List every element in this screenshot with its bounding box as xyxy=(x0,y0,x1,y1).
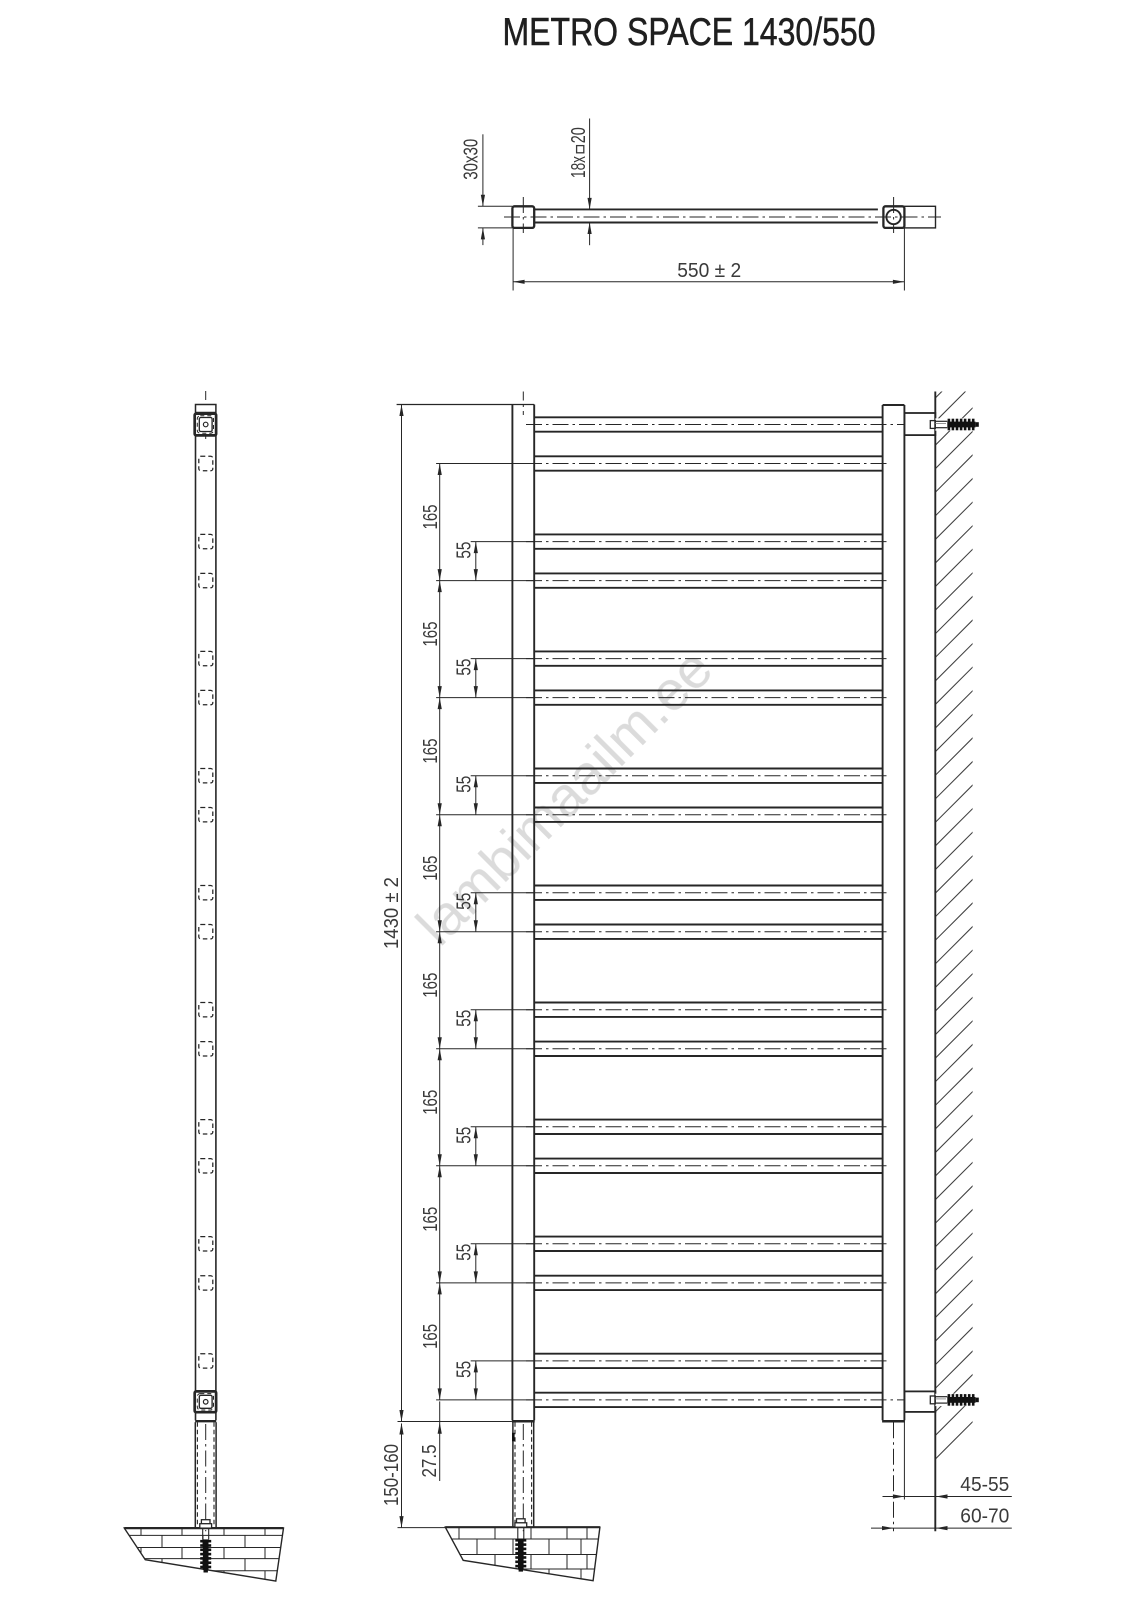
svg-text:55: 55 xyxy=(454,542,476,559)
svg-text:30x30: 30x30 xyxy=(461,139,483,180)
svg-text:METRO SPACE 1430/550: METRO SPACE 1430/550 xyxy=(503,11,876,54)
svg-text:1430 ± 2: 1430 ± 2 xyxy=(381,877,403,949)
svg-text:45-55: 45-55 xyxy=(960,1474,1009,1496)
svg-text:27.5: 27.5 xyxy=(419,1445,441,1478)
svg-text:150-160: 150-160 xyxy=(381,1444,403,1506)
svg-text:165: 165 xyxy=(420,739,442,764)
svg-text:55: 55 xyxy=(454,1010,476,1027)
svg-text:55: 55 xyxy=(454,776,476,793)
svg-text:165: 165 xyxy=(420,1324,442,1349)
svg-text:55: 55 xyxy=(454,1361,476,1378)
svg-text:165: 165 xyxy=(420,973,442,998)
svg-text:18x: 18x xyxy=(568,156,590,178)
svg-text:550 ± 2: 550 ± 2 xyxy=(677,260,741,282)
svg-text:55: 55 xyxy=(454,659,476,676)
svg-text:60-70: 60-70 xyxy=(960,1506,1009,1528)
svg-text:165: 165 xyxy=(420,622,442,647)
svg-text:165: 165 xyxy=(420,505,442,530)
svg-text:20: 20 xyxy=(568,127,590,143)
svg-text:165: 165 xyxy=(420,1090,442,1115)
svg-text:165: 165 xyxy=(420,856,442,881)
svg-text:55: 55 xyxy=(454,893,476,910)
svg-text:165: 165 xyxy=(420,1207,442,1232)
svg-text:55: 55 xyxy=(454,1244,476,1261)
svg-text:55: 55 xyxy=(454,1127,476,1144)
